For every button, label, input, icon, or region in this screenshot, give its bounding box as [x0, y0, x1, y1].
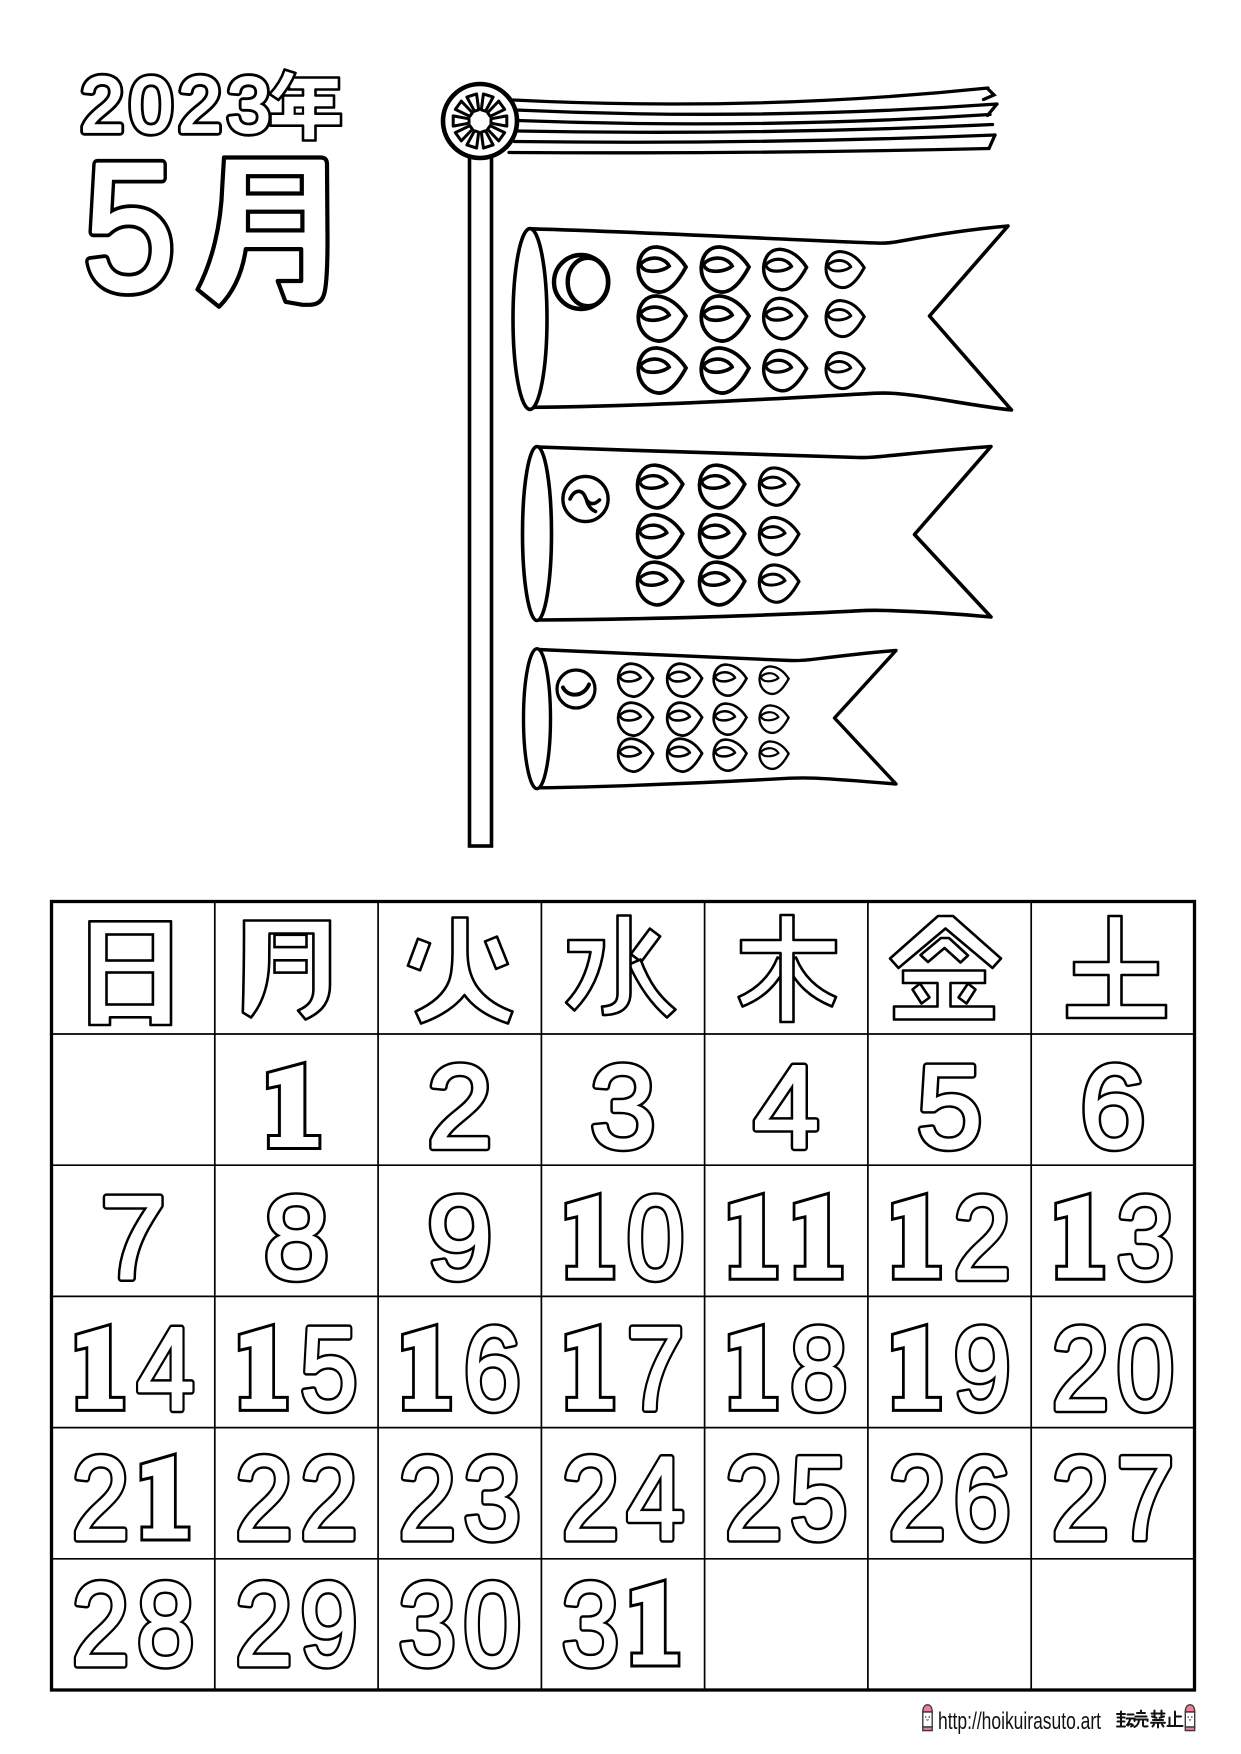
- svg-text:http://hoikuirasuto.art: http://hoikuirasuto.art: [938, 1708, 1101, 1735]
- svg-text:0: 0: [463, 1559, 521, 1691]
- svg-text:0: 0: [627, 1172, 685, 1304]
- svg-text:8: 8: [137, 1559, 195, 1691]
- svg-text:8: 8: [264, 1172, 330, 1304]
- svg-text:2: 2: [235, 1433, 293, 1565]
- svg-text:4: 4: [627, 1433, 685, 1565]
- svg-text:2: 2: [72, 1433, 130, 1565]
- svg-text:6: 6: [1080, 1042, 1146, 1174]
- svg-text:9: 9: [300, 1559, 358, 1691]
- svg-text:9: 9: [427, 1172, 493, 1304]
- svg-text:2: 2: [562, 1433, 620, 1565]
- svg-text:5: 5: [917, 1042, 983, 1174]
- svg-text:0: 0: [1117, 1303, 1175, 1435]
- svg-text:4: 4: [137, 1303, 195, 1435]
- svg-text:2: 2: [427, 1042, 493, 1174]
- svg-text:2: 2: [398, 1433, 456, 1565]
- svg-text:6: 6: [953, 1433, 1011, 1565]
- svg-text:9: 9: [953, 1303, 1011, 1435]
- svg-text:4: 4: [753, 1042, 819, 1174]
- svg-text:2: 2: [1052, 1433, 1110, 1565]
- svg-text:3: 3: [590, 1042, 656, 1174]
- svg-text:5: 5: [300, 1303, 358, 1435]
- svg-text:3: 3: [398, 1559, 456, 1691]
- svg-text:5: 5: [790, 1433, 848, 1565]
- svg-text:5: 5: [84, 125, 176, 329]
- svg-text:2: 2: [235, 1559, 293, 1691]
- svg-text:8: 8: [790, 1303, 848, 1435]
- svg-text:7: 7: [100, 1172, 166, 1304]
- svg-text:2: 2: [72, 1559, 130, 1691]
- svg-text:3: 3: [562, 1559, 620, 1691]
- svg-text:2: 2: [888, 1433, 946, 1565]
- svg-text:2: 2: [300, 1433, 358, 1565]
- svg-text:2: 2: [725, 1433, 783, 1565]
- svg-text:7: 7: [1117, 1433, 1175, 1565]
- svg-text:7: 7: [627, 1303, 685, 1435]
- svg-text:2: 2: [1052, 1303, 1110, 1435]
- svg-text:2: 2: [953, 1172, 1011, 1304]
- svg-text:3: 3: [1117, 1172, 1175, 1304]
- svg-text:6: 6: [463, 1303, 521, 1435]
- svg-text:3: 3: [463, 1433, 521, 1565]
